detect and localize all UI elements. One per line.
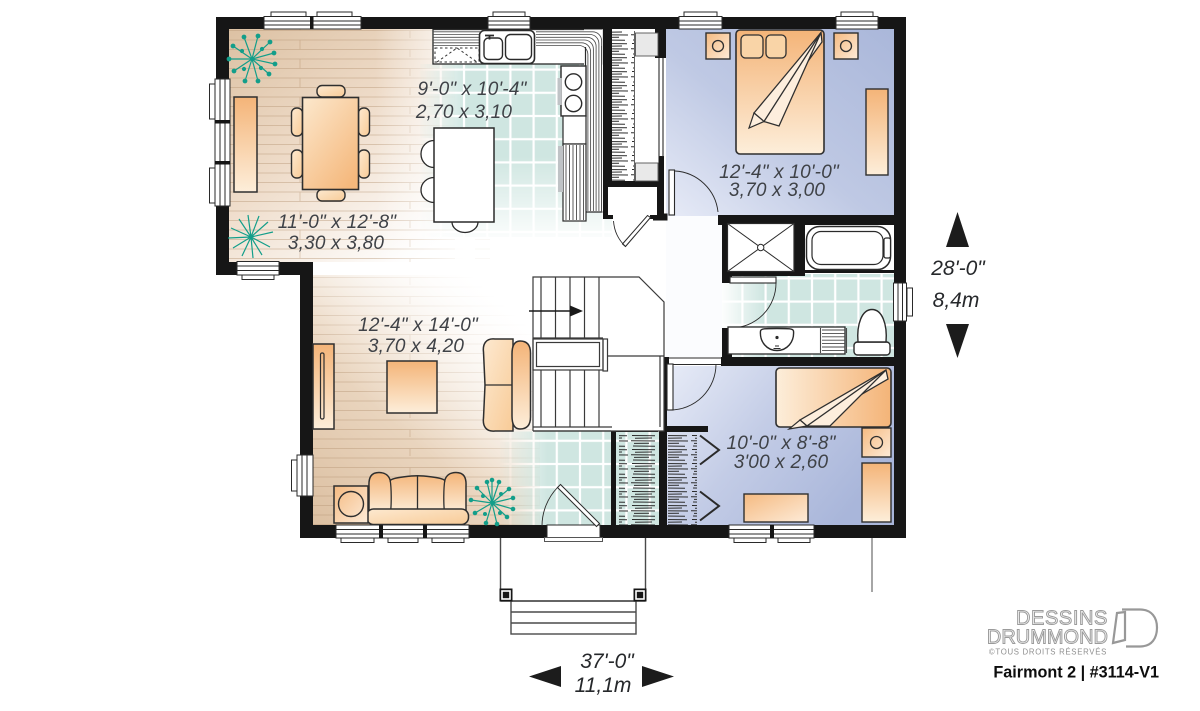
svg-text:11'-0" x 12'-8": 11'-0" x 12'-8" [278,212,398,233]
svg-text:©TOUS DROITS RÉSERVÉS: ©TOUS DROITS RÉSERVÉS [989,648,1107,657]
svg-text:37'-0": 37'-0" [580,650,635,673]
svg-text:3'00 x 2,60: 3'00 x 2,60 [734,452,829,473]
svg-text:12'-4" x 14'-0": 12'-4" x 14'-0" [358,315,479,336]
svg-text:3,70 x 4,20: 3,70 x 4,20 [368,336,464,357]
svg-text:9'-0" x 10'-4": 9'-0" x 10'-4" [417,79,527,100]
svg-text:28'-0": 28'-0" [930,257,986,280]
svg-text:DRUMMOND: DRUMMOND [987,627,1108,649]
svg-text:11,1m: 11,1m [575,674,632,697]
svg-text:Fairmont 2 | #3114-V1: Fairmont 2 | #3114-V1 [993,664,1159,682]
svg-text:10'-0" x 8'-8": 10'-0" x 8'-8" [726,433,836,454]
svg-text:3,30 x 3,80: 3,30 x 3,80 [288,233,384,254]
svg-text:8,4m: 8,4m [933,289,980,312]
svg-text:2,70 x 3,10: 2,70 x 3,10 [415,102,512,123]
svg-text:3,70 x 3,00: 3,70 x 3,00 [729,180,825,201]
